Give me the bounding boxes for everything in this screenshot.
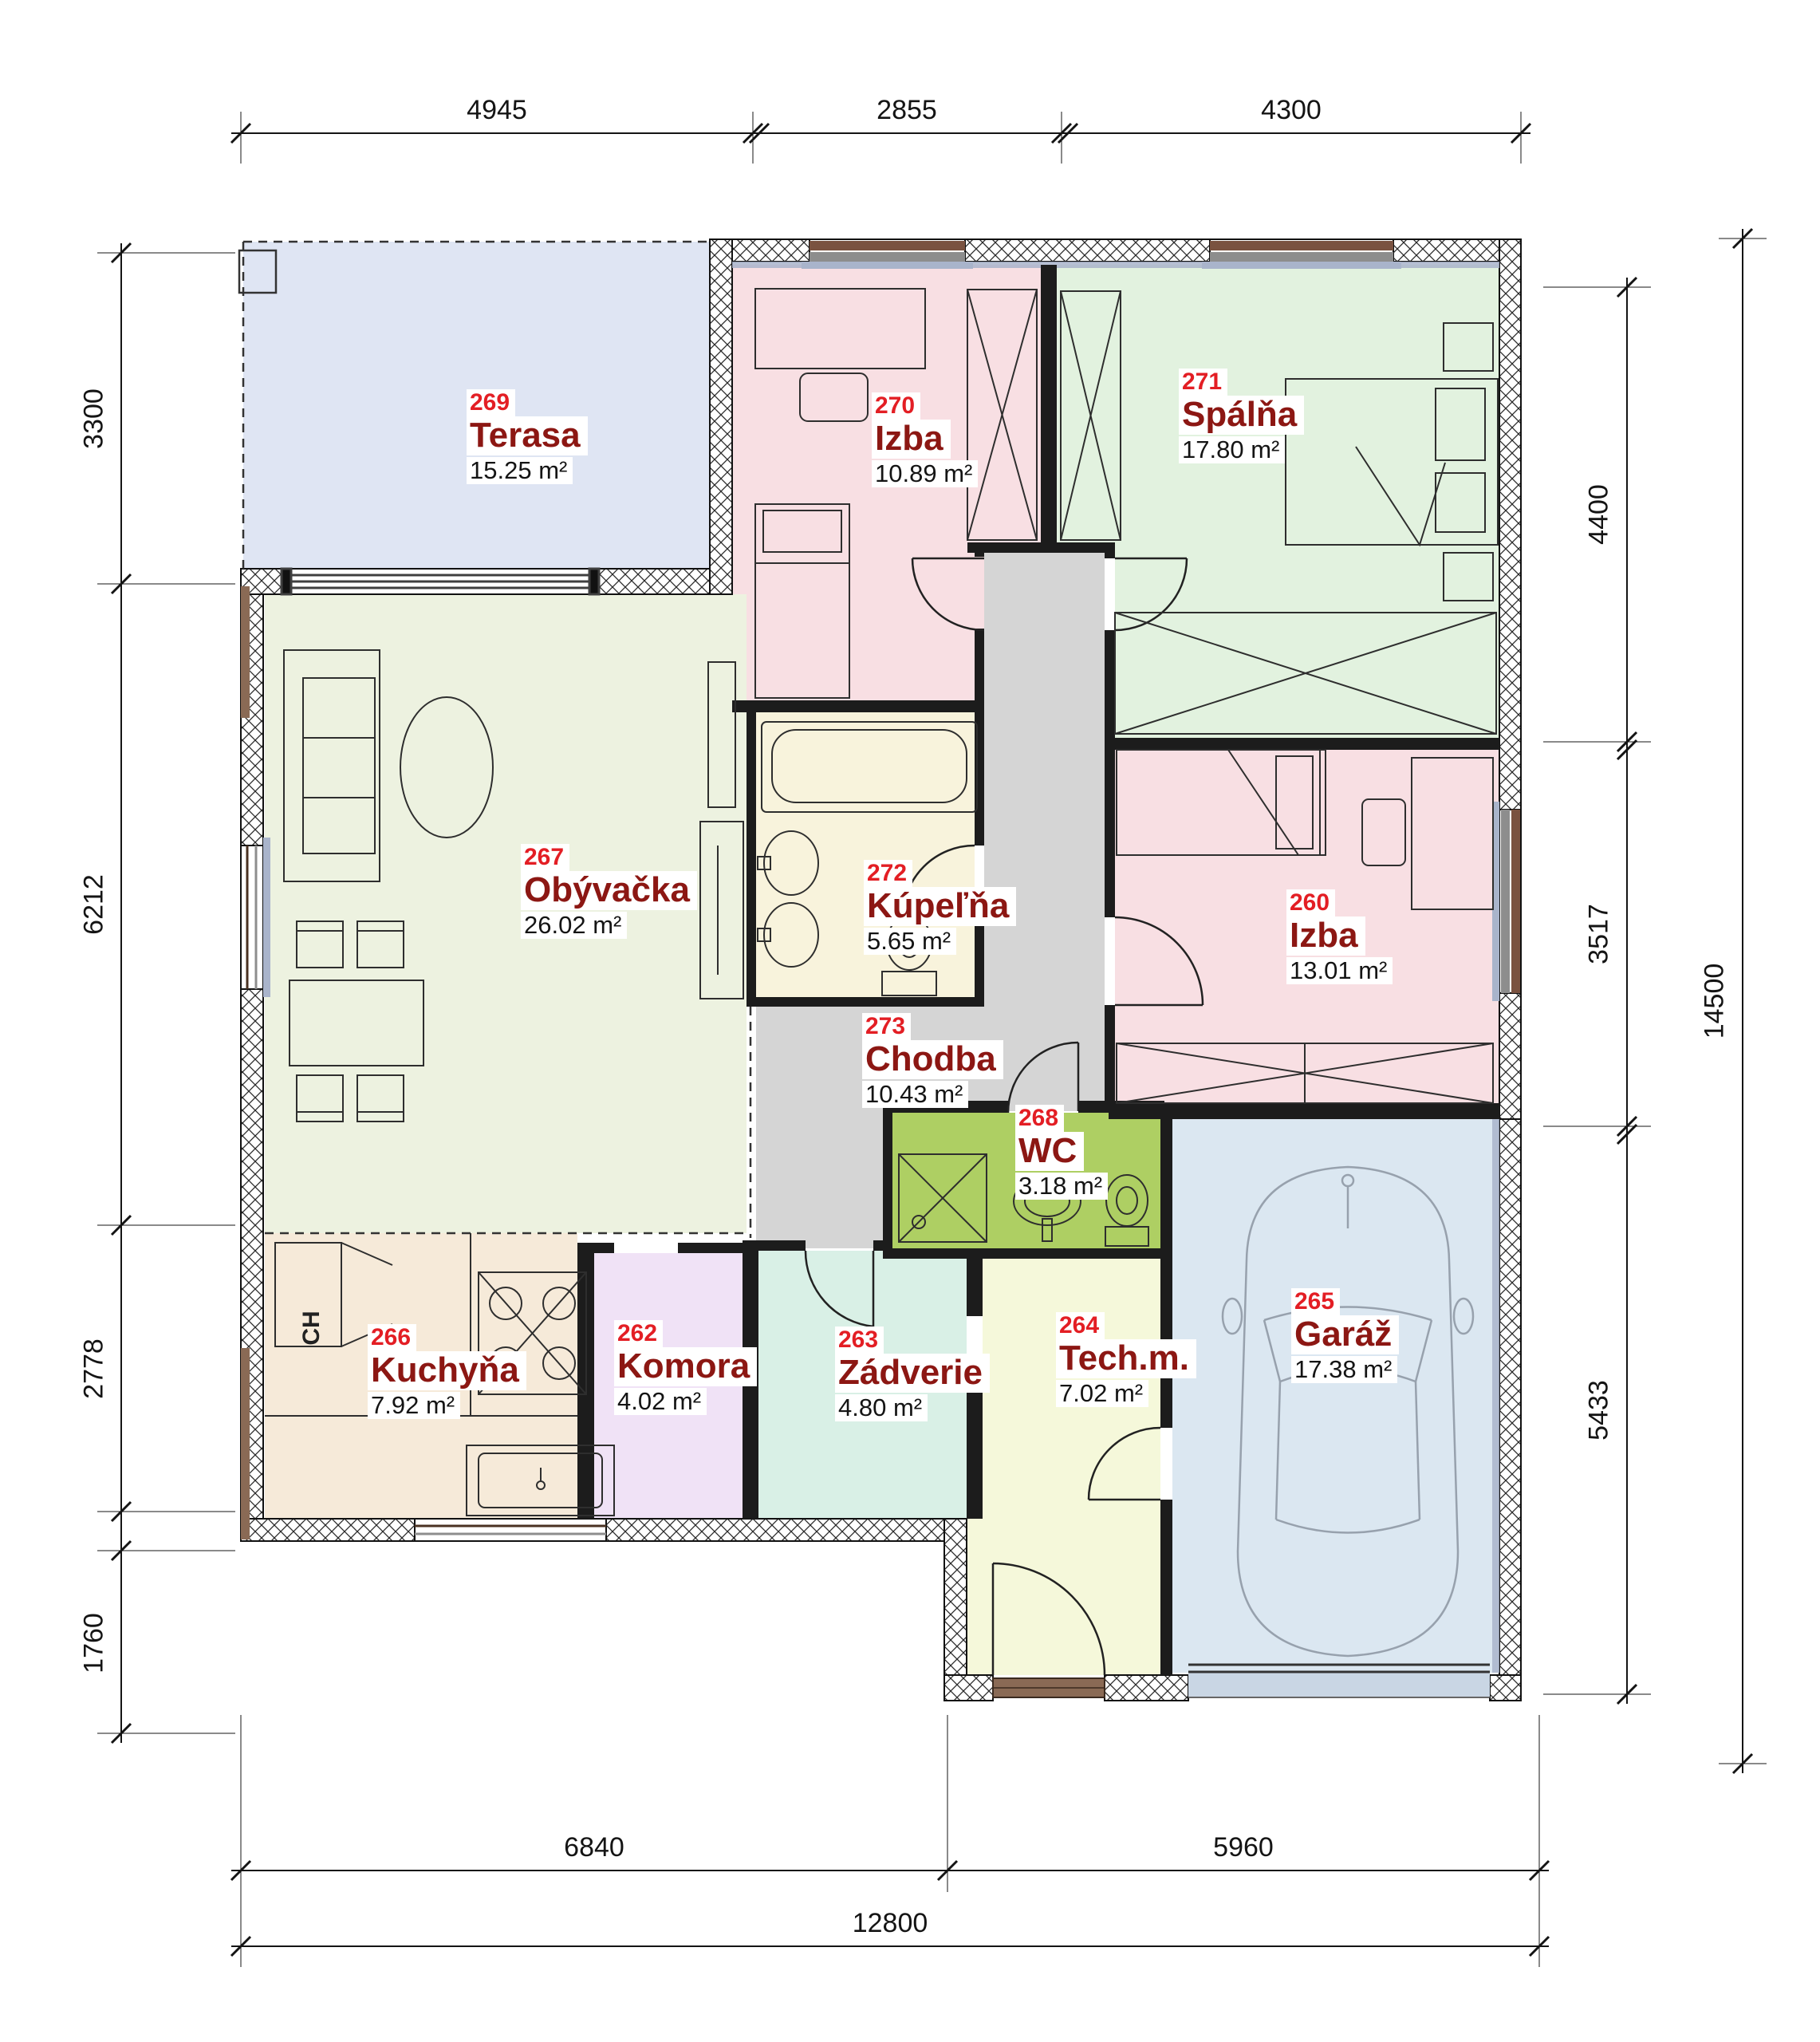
room-area: 3.18 m² [1015, 1173, 1108, 1200]
dim-left-2: 6212 [79, 874, 110, 935]
room-name: Spálňa [1179, 396, 1304, 435]
room-name: Tech.m. [1056, 1339, 1196, 1378]
label-wc: 268 WC 3.18 m² [1015, 1105, 1108, 1200]
room-number: 270 [872, 392, 920, 420]
dim-left-3: 2778 [79, 1338, 110, 1399]
sill-garage [1492, 1119, 1499, 1673]
room-number: 269 [467, 389, 515, 416]
room-number: 271 [1179, 369, 1227, 396]
room-area: 4.02 m² [614, 1388, 707, 1416]
room-area: 17.80 m² [1179, 436, 1285, 464]
dim-bottom-total: 12800 [853, 1908, 928, 1939]
room-name: Kuchyňa [368, 1351, 526, 1390]
room-area: 17.38 m² [1291, 1356, 1397, 1384]
room-name: Kúpeľňa [864, 887, 1016, 926]
room-name: Terasa [467, 416, 588, 455]
dim-bottom-2: 5960 [1213, 1832, 1274, 1863]
room-number: 263 [835, 1327, 884, 1354]
room-name: Izba [1286, 917, 1365, 956]
room-name: Komora [614, 1347, 757, 1386]
sill-top [732, 262, 1499, 268]
room-number: 262 [614, 1320, 663, 1347]
dim-right-2: 3517 [1584, 904, 1615, 964]
dim-top-2: 2855 [877, 95, 937, 126]
cladding-bottom [241, 1348, 250, 1539]
label-garaz: 265 Garáž 17.38 m² [1291, 1288, 1399, 1383]
room-name: Garáž [1291, 1315, 1399, 1354]
entry-threshold-icon [993, 1678, 1105, 1697]
room-number: 264 [1056, 1312, 1105, 1339]
label-techm: 264 Tech.m. 7.02 m² [1056, 1312, 1196, 1407]
room-number: 267 [521, 844, 569, 871]
label-kupelna: 272 Kúpeľňa 5.65 m² [864, 860, 1016, 955]
label-chodba: 273 Chodba 10.43 m² [862, 1013, 1003, 1108]
label-izba-260: 260 Izba 13.01 m² [1286, 889, 1393, 984]
label-obyvacka: 267 Obývačka 26.02 m² [521, 844, 697, 939]
room-area: 10.89 m² [872, 460, 978, 488]
room-area: 10.43 m² [862, 1081, 968, 1109]
dim-top-1: 4945 [467, 95, 527, 126]
label-zadverie: 263 Zádverie 4.80 m² [835, 1327, 990, 1421]
room-area: 7.92 m² [368, 1392, 460, 1420]
room-area: 26.02 m² [521, 912, 627, 940]
dim-left-4: 1760 [79, 1613, 110, 1673]
dim-right-total: 14500 [1700, 964, 1731, 1039]
room-number: 260 [1286, 889, 1335, 917]
dim-top-3: 4300 [1261, 95, 1322, 126]
room-name: WC [1015, 1132, 1084, 1171]
label-komora: 262 Komora 4.02 m² [614, 1320, 757, 1415]
window-izba-260-icon [1492, 802, 1521, 1001]
room-garaz [1172, 1119, 1499, 1673]
dim-left-1: 3300 [79, 388, 110, 449]
room-name: Zádverie [835, 1354, 990, 1393]
room-area: 7.02 m² [1056, 1380, 1148, 1408]
window-obyvacka-icon [241, 838, 270, 997]
room-number: 268 [1015, 1105, 1064, 1132]
label-spalna: 271 Spálňa 17.80 m² [1179, 369, 1304, 463]
room-area: 15.25 m² [467, 457, 573, 485]
dim-bottom-1: 6840 [564, 1832, 624, 1863]
floor-plan-page: CH 269 Terasa 15.25 m² [0, 0, 1820, 2042]
label-kuchyna: 266 Kuchyňa 7.92 m² [368, 1324, 526, 1419]
room-number: 266 [368, 1324, 416, 1351]
room-area: 13.01 m² [1286, 957, 1393, 985]
room-area: 4.80 m² [835, 1394, 928, 1422]
window-kuchyna-icon [415, 1519, 606, 1541]
cladding-top [241, 586, 250, 718]
room-name: Chodba [862, 1040, 1003, 1079]
room-name: Izba [872, 420, 951, 459]
dim-right-1: 4400 [1584, 484, 1615, 545]
room-area: 5.65 m² [864, 928, 956, 956]
room-number: 265 [1291, 1288, 1340, 1315]
room-number: 273 [862, 1013, 911, 1040]
label-terasa: 269 Terasa 15.25 m² [467, 389, 588, 484]
label-izba-270: 270 Izba 10.89 m² [872, 392, 978, 487]
dim-right-3: 5433 [1584, 1380, 1615, 1441]
fridge-label: CH [298, 1311, 325, 1345]
room-number: 272 [864, 860, 912, 887]
window-terasa-icon [282, 569, 599, 594]
room-name: Obývačka [521, 871, 697, 910]
